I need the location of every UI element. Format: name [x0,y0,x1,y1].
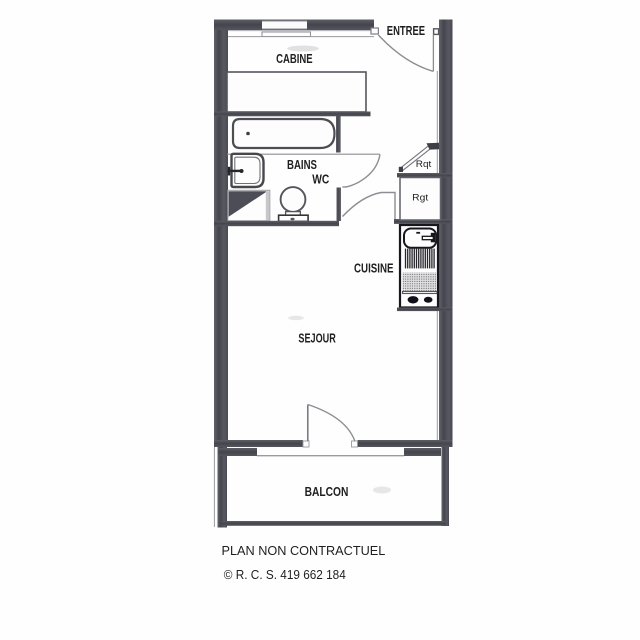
svg-text:SEJOUR: SEJOUR [298,332,335,346]
svg-text:WC: WC [312,173,329,187]
svg-text:© R. C. S. 419 662 184: © R. C. S. 419 662 184 [224,567,346,582]
svg-text:CABINE: CABINE [276,52,313,66]
svg-text:ENTREE: ENTREE [387,24,425,38]
svg-text:Rqt: Rqt [416,159,432,169]
svg-text:Rgt: Rgt [412,192,428,203]
svg-text:CUISINE: CUISINE [354,261,394,275]
svg-text:BALCON: BALCON [305,484,349,499]
svg-text:PLAN NON CONTRACTUEL: PLAN NON CONTRACTUEL [222,543,386,558]
svg-text:BAINS: BAINS [287,158,317,172]
